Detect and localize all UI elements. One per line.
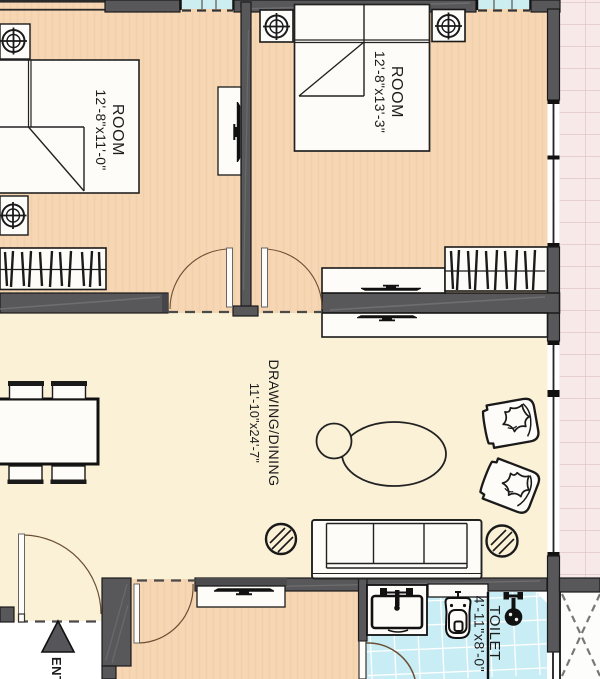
svg-text:TOILET: TOILET [486,605,503,660]
svg-text:ENT: ENT [49,657,64,679]
svg-text:4'-11"x8'-0": 4'-11"x8'-0" [472,596,488,673]
